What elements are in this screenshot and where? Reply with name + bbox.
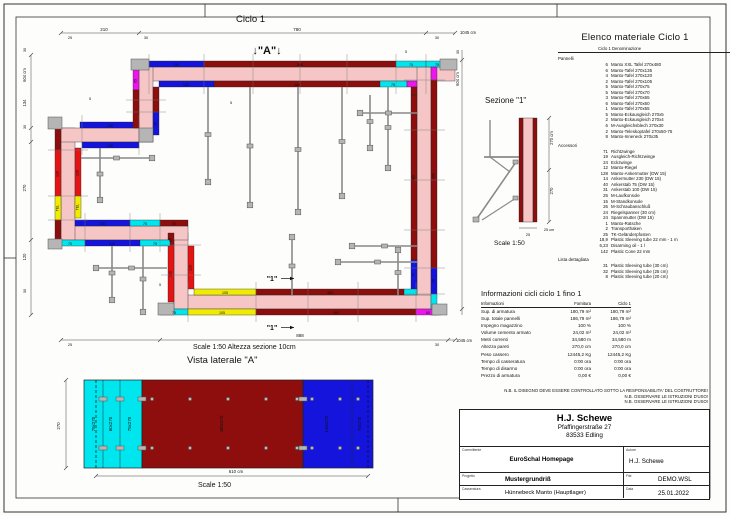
dim-label: 134 <box>22 99 27 107</box>
dim-label: 780 <box>293 27 301 32</box>
dim-label: 30 <box>23 125 27 129</box>
brace-foot <box>97 197 103 203</box>
brace-foot <box>295 209 301 215</box>
title-block: H.J. Schewe Pfaffingerstraße 27 83533 Ed… <box>459 409 710 500</box>
section-cut-label: "1" <box>267 325 278 332</box>
formwork-panel <box>133 90 139 128</box>
sideview-label: 70x270 <box>357 416 362 431</box>
info-label: Prezzo di armatura <box>481 372 545 379</box>
project-label: Progetto <box>462 474 475 478</box>
plan-scale-note: Scale 1:50 Altezza sezione 10cm <box>193 344 296 351</box>
info-label: Peso cassero <box>481 351 545 358</box>
cycle-info-row: Tempo di casseratura0:00 ora0:00 ora <box>481 358 631 365</box>
sideview-label: 270 <box>56 422 61 430</box>
brace-turnbuckle <box>114 156 120 160</box>
section-panel <box>533 118 537 222</box>
info-ciclo1: 100 % <box>591 322 631 329</box>
info-label: Tempo di disarmo <box>481 365 545 372</box>
brace-foot <box>349 243 355 249</box>
section-scale: Scale 1:50 <box>494 240 525 247</box>
dim-label: 30 <box>23 289 27 293</box>
dim-label: 30 <box>435 343 439 347</box>
info-fornitura: 0,00 € <box>545 372 591 379</box>
panel-label: 75 <box>68 242 72 246</box>
panel-label: 480 <box>432 173 436 179</box>
sideview-label: 480x270 <box>219 415 224 432</box>
panel-label: 75 <box>435 63 439 67</box>
cycle-info-rows: Sup. di armatura180,79 m²180,79 m²Sup. t… <box>481 308 631 379</box>
info-ciclo1: 0:00 ora <box>591 358 631 365</box>
panel-label: 75 <box>153 242 157 246</box>
wall-segment <box>174 233 188 309</box>
brace-turnbuckle <box>140 277 146 281</box>
client-label: Committente <box>462 448 481 452</box>
tie-marker <box>151 398 154 401</box>
panel-label: 75 <box>391 83 395 87</box>
brace-foot <box>149 155 155 161</box>
panel-label: 480 <box>333 311 339 315</box>
brace-turnbuckle <box>205 133 211 137</box>
brace-turnbuckle <box>386 111 392 115</box>
info-label: Impegno magazzino <box>481 322 545 329</box>
dim-label: 30 <box>23 48 27 52</box>
tie-marker <box>151 447 154 450</box>
col-fornitura: Fornitura <box>545 301 591 306</box>
wall-segment <box>417 67 431 309</box>
brace-foot <box>140 309 146 315</box>
joint-clamp <box>299 446 307 450</box>
tie-marker <box>227 398 230 401</box>
info-label: Tempo di casseratura <box>481 358 545 365</box>
tie-marker <box>265 447 268 450</box>
info-label: Altezza pareti <box>481 343 545 350</box>
info-fornitura: 180,79 m² <box>545 308 591 315</box>
brace-foot <box>289 234 295 240</box>
brace-foot <box>385 165 391 171</box>
side-view-scale: Scale 1:50 <box>198 482 231 489</box>
panel-label: 105 <box>222 291 228 295</box>
tie-marker <box>265 398 268 401</box>
cycle-info-header: Informazioni Fornitura Ciclo 1 <box>481 301 631 308</box>
dim-label: 270 <box>22 184 27 192</box>
section-dim-label: 270 <box>549 187 554 195</box>
panel-label: 30 <box>169 238 173 242</box>
panel-label: 480 <box>327 291 333 295</box>
sideview-label: 75x270 <box>127 416 132 431</box>
info-fornitura: 34,580 m <box>545 336 591 343</box>
sideview-panel-blue <box>303 380 373 468</box>
brace-turnbuckle <box>247 144 253 148</box>
info-fornitura: 24,02 m³ <box>545 329 591 336</box>
panel-label: 65 <box>426 311 430 315</box>
tie-marker <box>311 447 314 450</box>
dim-label: 604 cm <box>455 72 460 86</box>
tie-marker <box>357 447 360 450</box>
joint-clamp <box>138 446 146 450</box>
view-a-marker: ↓"A"↓ <box>252 45 281 57</box>
title-block-grid: Committente EuroSchal Homepage Autore H.… <box>460 447 709 498</box>
corner-hardware <box>139 128 153 142</box>
col-informazioni: Informazioni <box>481 301 545 306</box>
panel-label: TEL <box>76 204 80 211</box>
brace-foot <box>93 265 99 271</box>
dim-label: 604 cm <box>22 68 27 82</box>
tie-marker <box>296 447 299 450</box>
cycle-info-row: Sup. di armatura180,79 m²180,79 m² <box>481 308 631 315</box>
info-fornitura: 186,79 m² <box>545 315 591 322</box>
side-view-title: Vista laterale "A" <box>187 355 257 366</box>
joint-clamp <box>116 397 124 401</box>
info-fornitura: 270,0 cm <box>545 343 591 350</box>
panel-label: 135 <box>173 63 179 67</box>
info-ciclo1: 34,580 m <box>591 336 631 343</box>
corner-hardware <box>432 304 447 315</box>
brace-turnbuckle <box>385 126 391 130</box>
tie-marker <box>311 398 314 401</box>
section-wall <box>523 118 533 222</box>
panel-label: 135 <box>109 242 115 246</box>
material-item-qty: 8 <box>558 134 611 140</box>
material-list-title: Elenco materiale Ciclo 1 <box>558 32 712 43</box>
wall-segment <box>140 67 455 81</box>
info-label: Metri correnti <box>481 336 545 343</box>
client-value: EuroSchal Homepage <box>460 456 623 463</box>
file-label: File <box>626 474 631 478</box>
info-ciclo1: 186,79 m² <box>591 315 631 322</box>
info-fornitura: 12445,2 Kg <box>545 351 591 358</box>
company-street: Pfaffingerstraße 27 <box>460 424 709 432</box>
section-dim-label: 25 cm <box>544 228 554 232</box>
material-item: 8Manto-Inneneck 270x35 <box>558 134 712 140</box>
project-value: Mustergrundriß <box>505 476 623 483</box>
info-fornitura: 100 % <box>545 322 591 329</box>
formwork-panel <box>153 87 159 112</box>
material-group-label: Pannelli <box>558 56 712 61</box>
panel-label: 480 <box>297 63 303 67</box>
brace-foot <box>339 193 345 199</box>
date-value: 25.01.2022 <box>658 490 709 497</box>
panel-label: 120 <box>56 171 60 177</box>
brace-turnbuckle <box>395 271 401 275</box>
brace-foot <box>247 202 253 208</box>
brace-turnbuckle <box>109 271 115 275</box>
dim-label: 25 <box>68 343 72 347</box>
section-dim-label: 25 <box>526 233 530 237</box>
material-list: Elenco materiale Ciclo 1 Ciclo 1 Denomin… <box>558 32 712 280</box>
dim-label: 210 <box>100 27 108 32</box>
corner-hardware <box>48 239 62 249</box>
section-cut-arrowhead <box>290 326 294 330</box>
annotation-label: 5 <box>159 283 161 287</box>
panel-label: 480 <box>412 175 416 181</box>
dim-label: 30 <box>456 50 460 54</box>
tie-marker <box>296 398 299 401</box>
tie-marker <box>189 398 192 401</box>
panel-label: 75 <box>172 311 176 315</box>
brace-foot <box>395 247 401 253</box>
dim-label: 888 <box>296 333 304 338</box>
panel-label: 120 <box>76 170 80 176</box>
brace-foot <box>357 110 363 116</box>
tie-marker <box>357 398 360 401</box>
formwork-panel <box>407 81 417 87</box>
corner-hardware <box>131 59 149 70</box>
panel-label: 65 <box>134 79 138 83</box>
material-item: 8Plastic Sleeving tube (20 cm) <box>558 274 712 280</box>
tie-marker <box>227 447 230 450</box>
drawing-sheet: "1""1"↓"A"↓2107801045 cm25303030604 cm13… <box>0 0 730 516</box>
wall-segment <box>61 128 75 240</box>
panel-label: 120 <box>189 265 193 271</box>
formwork-panel <box>431 67 437 80</box>
info-ciclo1: 24,02 m³ <box>591 329 631 336</box>
formwork-value: Hünnebeck Manto (Hauptlager) <box>505 490 623 496</box>
tie-marker <box>339 447 342 450</box>
panel-label: 135 <box>99 222 105 226</box>
cycle-info-title: Informazioni cicli ciclo 1 fino 1 <box>481 289 631 298</box>
cycle-info-row: Tempo di disarmo0:00 ora0:00 ora <box>481 365 631 372</box>
info-label: Sup. totale pannelli <box>481 315 545 322</box>
panel-label: 135 <box>107 144 113 148</box>
nb-notes: N.B. IL DISEGNO DEVE ESSERE CONTROLLATO … <box>448 388 708 405</box>
author-label: Autore <box>626 448 636 452</box>
wall-segment <box>174 295 431 309</box>
dim-label: 1045 cm <box>460 30 477 35</box>
joint-clamp <box>138 397 146 401</box>
brace-foot <box>367 145 373 151</box>
title-block-header: H.J. Schewe Pfaffingerstraße 27 83533 Ed… <box>460 410 709 447</box>
cycle-info-row: Impegno magazzino100 %100 % <box>481 322 631 329</box>
material-list-column-header: Ciclo 1 Denominazione <box>558 46 730 53</box>
panel-label: 135 <box>183 83 189 87</box>
info-ciclo1: 12445,2 Kg <box>591 351 631 358</box>
info-ciclo1: 180,79 m² <box>591 308 631 315</box>
annotation-label: 5 <box>89 97 91 101</box>
info-ciclo1: 0:00 ora <box>591 365 631 372</box>
col-ciclo1: Ciclo 1 <box>591 301 631 306</box>
dim-label: 1045 cm <box>456 338 473 343</box>
annotation-label: 5 <box>405 50 407 54</box>
section-bracket <box>490 157 510 172</box>
brace-turnbuckle <box>289 264 295 268</box>
tie-marker <box>189 447 192 450</box>
material-item-name: Plastic Cone 22 mm <box>611 249 712 255</box>
panel-label: 75 <box>143 222 147 226</box>
cycle-info-row: Sup. totale pannelli186,79 m²186,79 m² <box>481 315 631 322</box>
material-group-label: Accessori <box>558 143 712 148</box>
panel-label: 105 <box>219 311 225 315</box>
panel-label: 75 <box>409 63 413 67</box>
cycle-info-row: Metri correnti34,580 m34,580 m <box>481 336 631 343</box>
sideview-label: 135x270 <box>324 415 329 432</box>
joint-clamp <box>99 446 107 450</box>
sideview-label: 60x270 <box>108 416 113 431</box>
section-panel <box>519 118 523 222</box>
brace-foot <box>109 297 115 303</box>
tie-marker <box>339 398 342 401</box>
section-title: Sezione "1" <box>485 96 526 105</box>
section-dim-label: 270 cm <box>549 131 554 145</box>
date-label: Data <box>626 487 633 491</box>
material-item-qty: 8 <box>558 274 611 280</box>
cycle-info-table: Informazioni cicli ciclo 1 fino 1 Inform… <box>481 289 631 379</box>
material-item-qty: 142 <box>558 249 611 255</box>
nb-note-line: N.B. OSSERVARE LE ISTRUZIONI D'USO! <box>448 399 708 405</box>
material-item: 142Plastic Cone 22 mm <box>558 249 712 255</box>
panel-label: 70 <box>412 273 416 277</box>
section-brace-foot <box>473 217 479 222</box>
corner-hardware <box>440 59 457 70</box>
joint-clamp <box>99 397 107 401</box>
cycle-info-row: Peso cassero12445,2 Kg12445,2 Kg <box>481 351 631 358</box>
formwork-label: Casseratura <box>462 487 480 491</box>
joint-clamp <box>116 446 124 450</box>
cycle-title: Ciclo 1 <box>236 14 265 25</box>
section-brace-connector <box>513 160 518 164</box>
sideview-label: 610 cm <box>229 469 244 474</box>
dim-label: 30 <box>435 36 439 40</box>
brace-foot <box>205 179 211 185</box>
file-value: DEMO.WSL <box>658 476 709 483</box>
brace-turnbuckle <box>295 148 301 152</box>
author-value: H.J. Schewe <box>629 458 709 465</box>
brace-turnbuckle <box>129 266 135 270</box>
dim-label: 30 <box>144 36 148 40</box>
panel-label: 480 <box>294 83 300 87</box>
cycle-info-row: Altezza pareti270,0 cm270,0 cm <box>481 343 631 350</box>
dim-label: 25 <box>68 36 72 40</box>
material-list-items: Pannelli6Manto XXL Tafel 270x4806Manto-T… <box>558 56 712 280</box>
brace-turnbuckle <box>339 140 345 144</box>
panel-label: 120 <box>169 271 173 277</box>
company-name: H.J. Schewe <box>460 410 709 424</box>
formwork-panel <box>411 87 417 95</box>
panel-label: 70 <box>432 279 436 283</box>
info-ciclo1: 270,0 cm <box>591 343 631 350</box>
dim-label: 120 <box>22 253 27 261</box>
material-item-name: Plastic Sleeving tube (20 cm) <box>611 274 712 280</box>
info-label: Volume cemento armato <box>481 329 545 336</box>
section-brace <box>482 198 516 220</box>
joint-clamp <box>299 397 307 401</box>
company-city: 83533 Edling <box>460 432 709 440</box>
panel-label: 135 <box>107 124 113 128</box>
material-group-label: Lista dettagliata <box>558 257 712 262</box>
cycle-info-row: Prezzo di armatura0,00 €0,00 € <box>481 372 631 379</box>
annotation-label: 5 <box>230 101 232 105</box>
panel-label: 30 <box>172 222 176 226</box>
info-label: Sup. di armatura <box>481 308 545 315</box>
info-ciclo1: 0,00 € <box>591 372 631 379</box>
panel-label: 35 <box>154 122 158 126</box>
brace-foot <box>335 259 341 265</box>
corner-hardware <box>48 117 62 129</box>
cycle-info-row: Volume cemento armato24,02 m³24,02 m³ <box>481 329 631 336</box>
info-fornitura: 0:00 ora <box>545 365 591 372</box>
brace-turnbuckle <box>367 120 373 124</box>
brace-turnbuckle <box>375 260 381 264</box>
section-cut-label: "1" <box>267 276 278 283</box>
material-item-name: Manto-Inneneck 270x35 <box>611 134 712 140</box>
sideview-label: 75x270 <box>91 416 96 431</box>
section-brace-connector <box>513 196 518 200</box>
brace-turnbuckle <box>382 244 388 248</box>
info-fornitura: 0:00 ora <box>545 358 591 365</box>
brace-turnbuckle <box>97 172 103 176</box>
panel-label: TEL <box>56 205 60 212</box>
